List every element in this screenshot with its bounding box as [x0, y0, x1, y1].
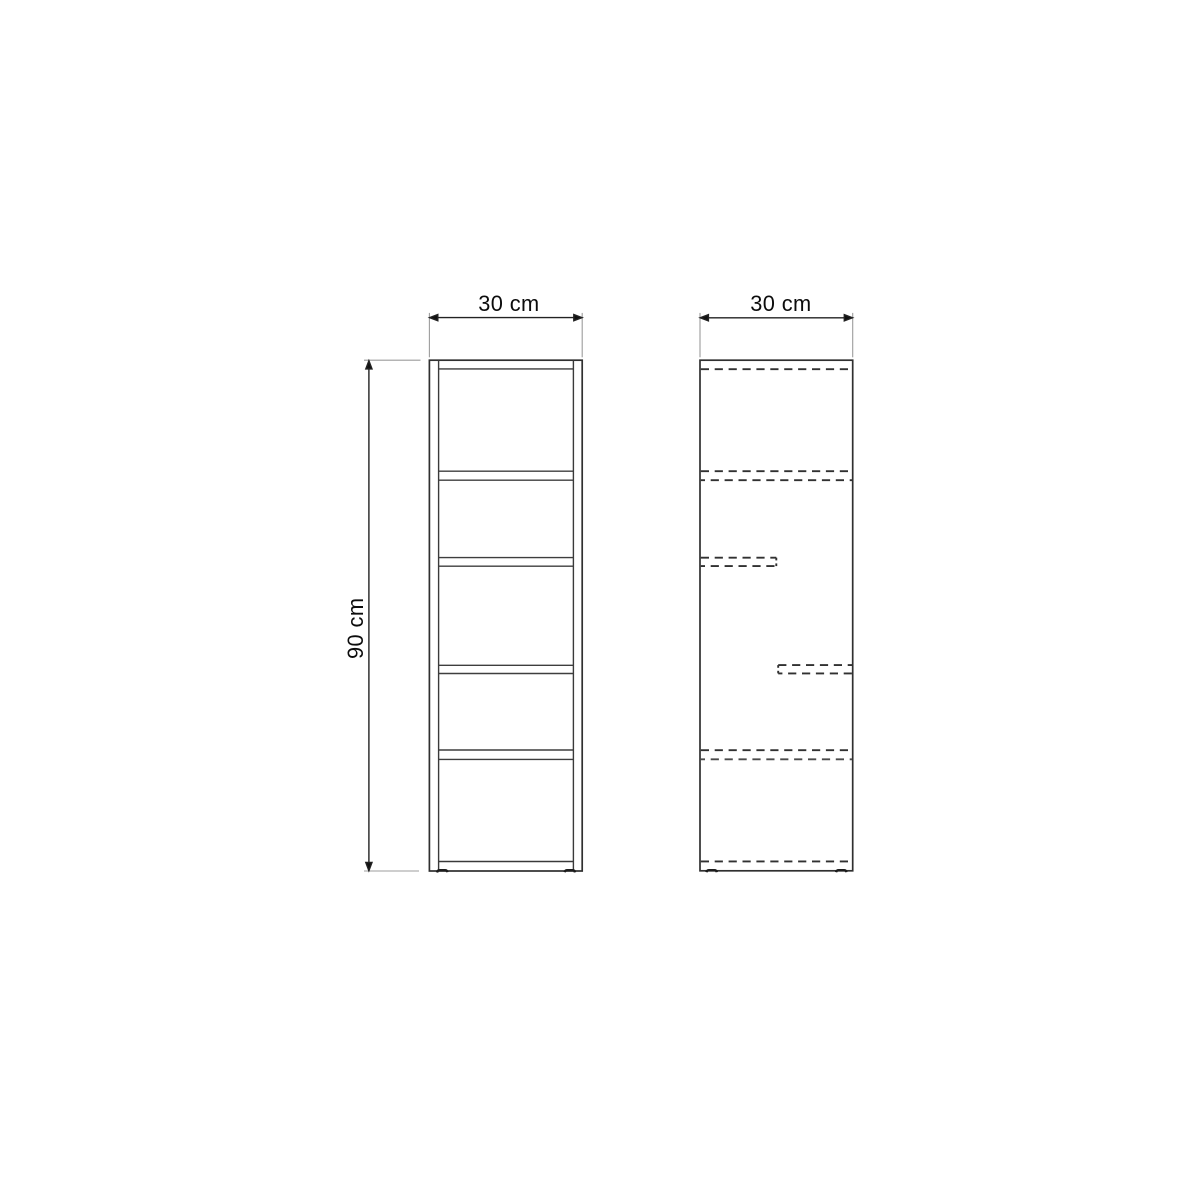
svg-text:30 cm: 30 cm: [750, 291, 811, 316]
svg-text:30 cm: 30 cm: [478, 291, 539, 316]
svg-text:90 cm: 90 cm: [343, 598, 368, 659]
